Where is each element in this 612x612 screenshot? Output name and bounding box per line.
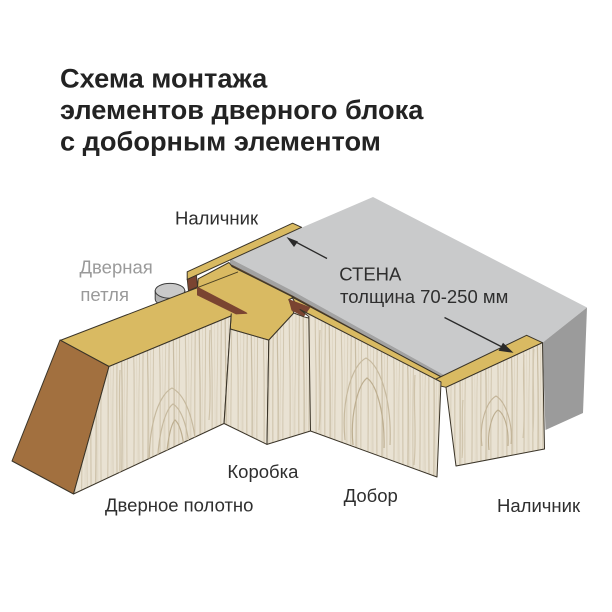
svg-text:Дверное полотно: Дверное полотно: [105, 495, 253, 516]
svg-text:толщина 70-250 мм: толщина 70-250 мм: [340, 286, 508, 307]
svg-text:СТЕНА: СТЕНА: [339, 264, 402, 285]
svg-text:Наличник: Наличник: [497, 495, 581, 516]
svg-text:Добор: Добор: [344, 485, 398, 506]
svg-text:петля: петля: [80, 284, 129, 305]
svg-text:Наличник: Наличник: [175, 208, 259, 229]
svg-text:Дверная: Дверная: [80, 256, 153, 277]
svg-text:Коробка: Коробка: [227, 461, 299, 482]
svg-text:с доборным элементом: с доборным элементом: [60, 126, 381, 157]
svg-text:элементов дверного блока: элементов дверного блока: [60, 94, 424, 125]
svg-text:Схема монтажа: Схема монтажа: [60, 63, 268, 94]
